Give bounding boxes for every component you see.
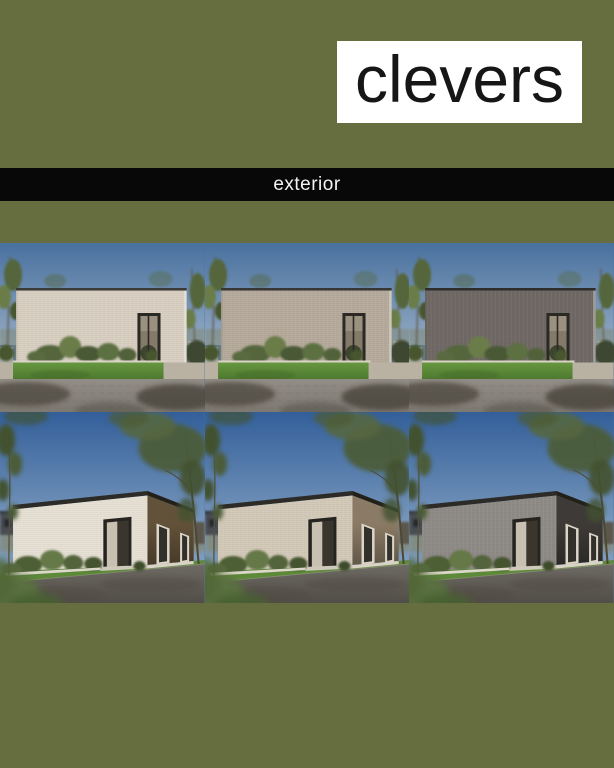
section-bar: exterior xyxy=(0,168,614,201)
render-corner-bronze-side xyxy=(0,412,205,603)
section-label: exterior xyxy=(273,174,340,196)
logo-text: clevers xyxy=(355,46,564,112)
render-corner-charcoal-side xyxy=(409,412,614,603)
render-front-greige-brick xyxy=(205,243,410,412)
logo-box: clevers xyxy=(337,41,582,123)
brochure-page: clevers exterior xyxy=(0,0,614,768)
gallery-row-front-elevations xyxy=(0,243,614,412)
render-front-dark-grey-brick xyxy=(409,243,614,412)
gallery-row-corner-views xyxy=(0,412,614,603)
render-front-cream-brick xyxy=(0,243,205,412)
render-corner-taupe-side xyxy=(205,412,410,603)
render-gallery xyxy=(0,243,614,603)
